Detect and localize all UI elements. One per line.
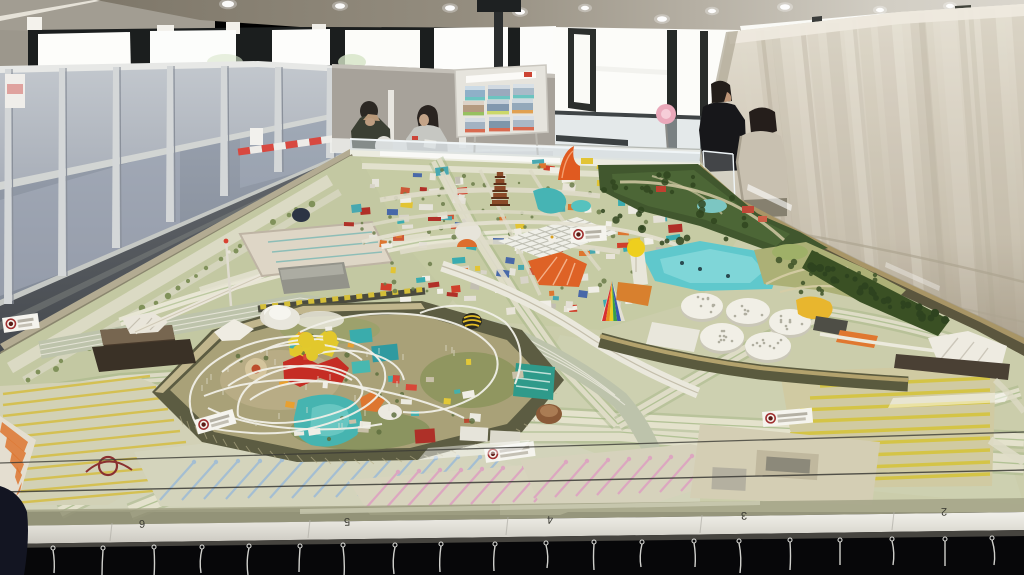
svg-text:2: 2 bbox=[941, 505, 948, 517]
svg-text:4: 4 bbox=[547, 513, 554, 525]
svg-text:5: 5 bbox=[344, 515, 351, 527]
svg-text:6: 6 bbox=[139, 517, 146, 529]
svg-text:3: 3 bbox=[741, 509, 748, 521]
